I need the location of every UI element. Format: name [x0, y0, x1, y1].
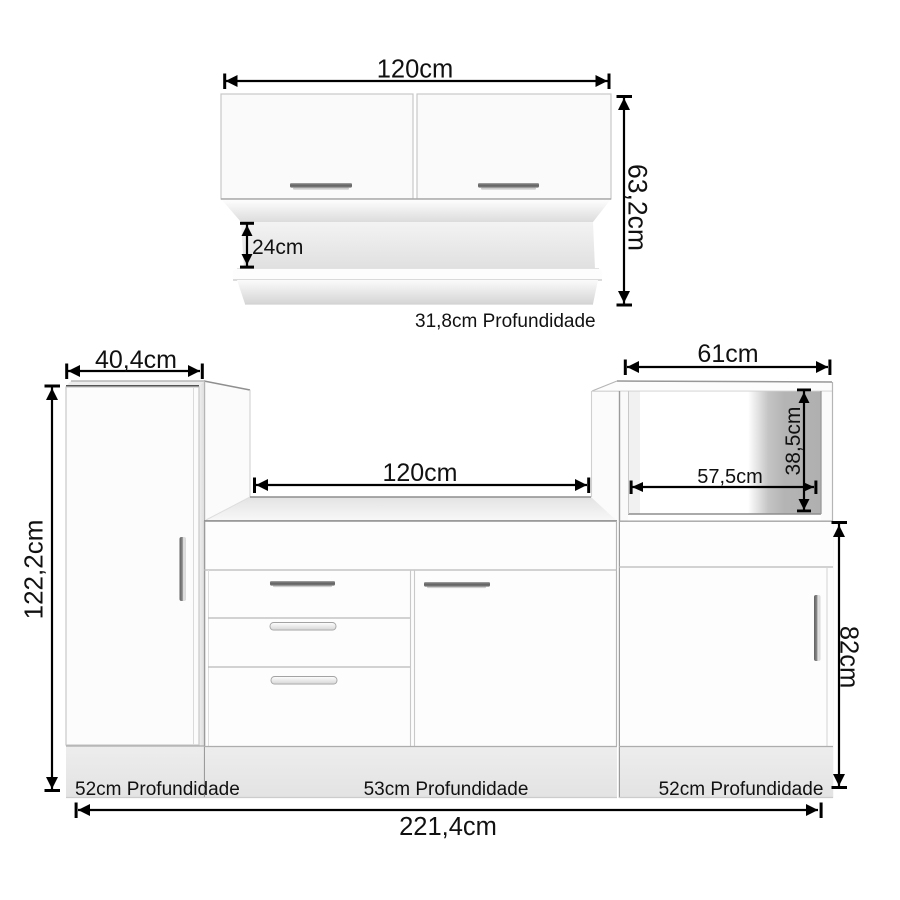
svg-text:52cm Profundidade: 52cm Profundidade: [75, 779, 240, 800]
svg-text:221,4cm: 221,4cm: [399, 813, 497, 841]
svg-text:120cm: 120cm: [382, 459, 457, 487]
svg-text:24cm: 24cm: [252, 236, 303, 259]
svg-text:122,2cm: 122,2cm: [19, 520, 49, 620]
svg-text:38,5cm: 38,5cm: [782, 407, 805, 476]
svg-text:120cm: 120cm: [377, 56, 454, 84]
svg-text:53cm Profundidade: 53cm Profundidade: [364, 779, 529, 800]
svg-text:82cm: 82cm: [835, 626, 863, 688]
svg-text:52cm Profundidade: 52cm Profundidade: [659, 779, 824, 800]
svg-text:57,5cm: 57,5cm: [697, 466, 763, 488]
svg-text:63,2cm: 63,2cm: [623, 164, 653, 251]
svg-text:61cm: 61cm: [697, 340, 758, 368]
svg-text:40,4cm: 40,4cm: [95, 346, 177, 374]
svg-text:31,8cm Profundidade: 31,8cm Profundidade: [415, 311, 596, 332]
